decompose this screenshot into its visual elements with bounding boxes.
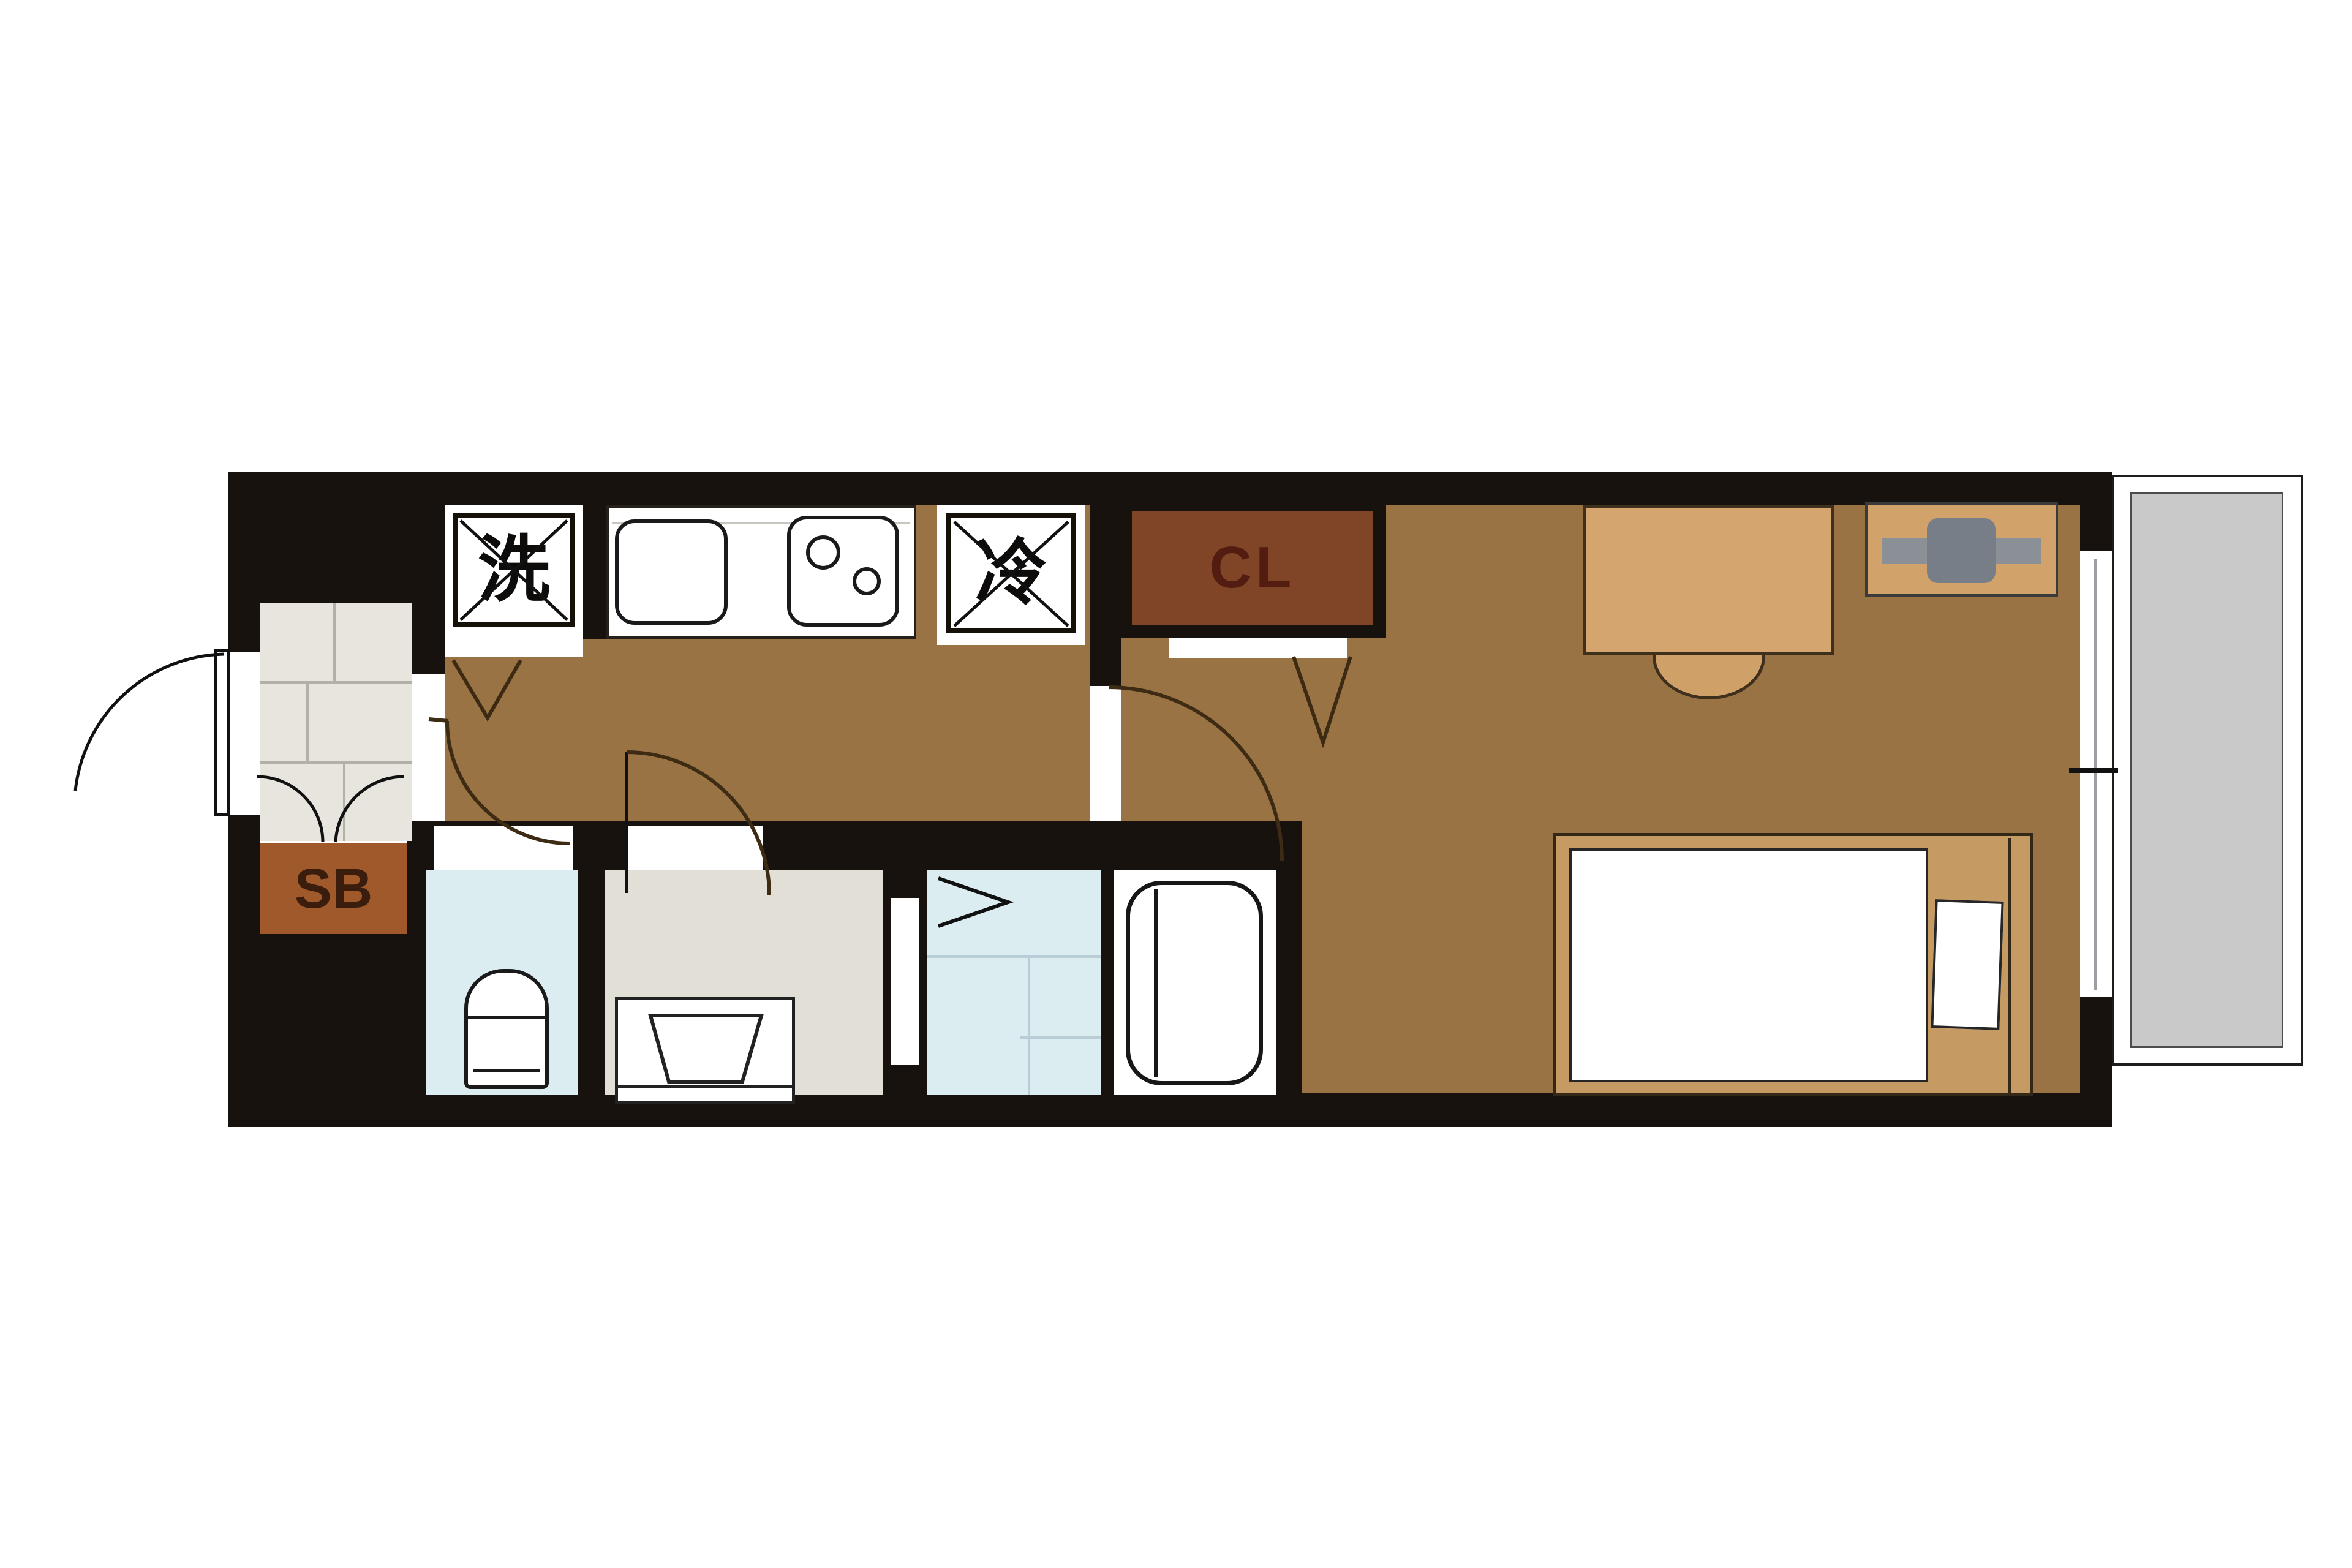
genkan-tile-floor [260,603,412,841]
entry-door-opening [228,652,260,815]
wall-washer-kitchen [583,505,606,639]
bathtub-icon [1126,881,1263,1085]
washer-label: 洗 [478,534,550,606]
pillow [1931,899,2003,1030]
bathtub-inner-line [1154,889,1158,1077]
floor-plan: 洗 冷 CL SB [0,0,2352,1568]
washroom-door-opening [625,826,763,870]
entry-door-arc [75,654,224,791]
fridge-label: 冷 [975,537,1047,609]
closet-label: CL [1210,538,1295,597]
wall-bath-tub [1101,870,1114,1095]
genkan-tile-line [333,603,336,681]
genkan-tile-line [343,764,345,841]
shoe-box: SB [260,843,407,934]
genkan-tile-line [306,684,309,761]
bath-tile-line-h2 [1020,1036,1101,1039]
wall-toilet-left [407,870,426,1095]
wall-entry-top-block [260,505,412,603]
stove-burner-small-icon [853,567,881,595]
bath-tile-line-h1 [927,956,1101,958]
washing-machine-space: 洗 [453,513,575,627]
stove-burner-large-icon [806,535,840,570]
wall-bottom [228,1093,2112,1127]
genkan-tile-line [260,681,412,684]
bath-tile-line-v [1028,957,1030,1095]
closet: CL [1132,511,1373,625]
toilet-door-opening [434,826,573,870]
bathroom-door [891,898,919,1065]
bed-headboard-line [2008,838,2011,1094]
wall-toilet-washroom [578,870,605,1095]
window-glass-line [2094,559,2097,990]
refrigerator-space: 冷 [946,513,1076,633]
balcony-deck [2130,492,2283,1048]
toilet-base-line [473,1069,540,1072]
stove-panel [787,516,899,627]
aircon-body [1927,518,1996,583]
wall-genkan-right [412,505,445,674]
mattress [1569,848,1928,1082]
bathroom [927,870,1101,1095]
desk [1583,505,1834,655]
wall-below-shoebox [260,934,407,1093]
genkan-tile-line [260,761,412,764]
washbasin [615,997,795,1104]
genkan-step-edge [412,674,445,841]
entry-door-leaf [214,649,230,816]
wall-tub-mainroom [1276,870,1302,1095]
kitchen-sink [615,519,728,625]
closet-threshold [1169,638,1347,658]
toilet-seat-line [467,1016,546,1019]
shoebox-label: SB [295,861,373,917]
